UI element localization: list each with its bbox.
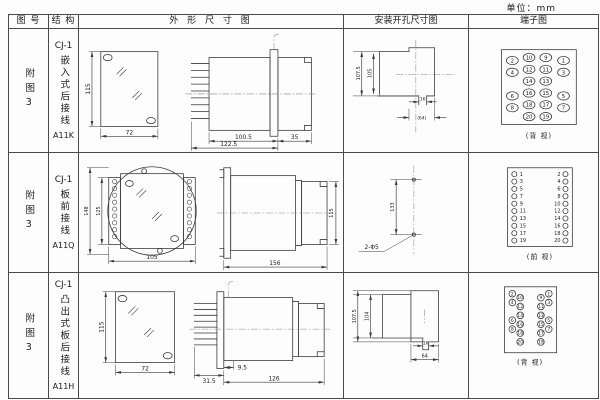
view-label: (背 视): [526, 131, 552, 140]
outline-drawing-a11q: 148 125 105 156 115: [80, 154, 343, 272]
dim-pin-length: 31.5: [202, 379, 215, 385]
svg-text:6: 6: [511, 93, 515, 99]
svg-text:5: 5: [562, 93, 565, 99]
row1-outline-cell: 115 72 100.5 35 122.5: [79, 29, 344, 153]
cutout-outline: [377, 47, 434, 104]
side-view: [185, 34, 317, 136]
unit-label: 单位：mm: [506, 1, 556, 14]
svg-text:14: 14: [554, 216, 560, 222]
svg-text:9: 9: [544, 55, 548, 61]
row2-install-cell: 133 2-Φ5: [344, 153, 469, 273]
svg-text:1: 1: [562, 58, 565, 64]
svg-text:10: 10: [554, 201, 560, 207]
row2-struct-cell: CJ-1 板前接线 A11Q: [49, 153, 79, 273]
svg-text:12: 12: [517, 304, 523, 310]
side-view: [216, 167, 332, 257]
dimensions: 107.5 104 16 64: [351, 291, 438, 363]
structure-desc: 嵌入式后接线: [59, 55, 69, 127]
svg-text:10: 10: [526, 55, 533, 61]
row3-install-cell: 107.5 104 16 64: [344, 273, 469, 398]
svg-text:16: 16: [554, 223, 560, 229]
row2-terminal-cell: 12 34 56 78 910 1112 1314 1516 1718 1920…: [469, 153, 598, 273]
dimensions: 107.5 105 16 (64): [352, 51, 445, 121]
dim-side-height: 115: [328, 208, 334, 217]
hole-callout: 2-Φ5: [364, 244, 379, 250]
dim-rear-length: 35: [290, 135, 298, 141]
front-view: [107, 166, 196, 254]
view-label: (前 视): [527, 252, 553, 261]
svg-text:19: 19: [520, 238, 526, 244]
terminal-diagram-a11h: 2 10 9 1 4 12 11 3 14 13 6 16 15 5 8 18: [469, 274, 598, 397]
dim-front-inner-height: 125: [95, 206, 101, 215]
svg-text:6: 6: [557, 186, 560, 192]
svg-text:11: 11: [520, 208, 526, 214]
svg-text:13: 13: [520, 216, 526, 222]
svg-text:11: 11: [542, 67, 549, 73]
row3-terminal-cell: 2 10 9 1 4 12 11 3 14 13 6 16 15 5 8 18: [469, 273, 598, 398]
svg-text:18: 18: [526, 102, 533, 108]
svg-text:19: 19: [538, 339, 544, 345]
header-fig: 图 号: [9, 15, 49, 29]
terminal-diagram-a11q: 12 34 56 78 910 1112 1314 1516 1718 1920…: [469, 154, 598, 272]
dimensions: 115 72 31.5 9.5 126: [99, 292, 323, 386]
svg-text:14: 14: [526, 79, 533, 85]
svg-text:15: 15: [542, 90, 549, 96]
svg-text:20: 20: [526, 114, 533, 120]
structure-desc: 板前接线: [59, 189, 69, 237]
dim-inner-height: 104: [364, 312, 370, 321]
row2-outline-cell: 148 125 105 156 115: [79, 153, 344, 273]
dim-cutout-width: 64: [421, 354, 427, 360]
manual-page: 单位：mm 图 号 结 构 外 形 尺 寸 图 安装开孔尺寸图 端子图 附图3 …: [0, 0, 600, 400]
svg-text:7: 7: [520, 193, 523, 199]
svg-text:14: 14: [517, 313, 523, 319]
svg-text:6: 6: [511, 318, 514, 324]
svg-text:20: 20: [517, 339, 523, 345]
dim-body-length: 100.5: [235, 135, 252, 141]
view-label: (背 视): [517, 358, 543, 367]
row1-install-cell: 107.5 105 16 (64): [344, 29, 469, 153]
svg-text:5: 5: [547, 318, 550, 324]
model-name: CJ-1: [55, 280, 73, 290]
dim-side-length: 156: [269, 261, 280, 267]
svg-text:3: 3: [562, 70, 565, 76]
dim-front-width: 72: [125, 130, 133, 136]
svg-text:16: 16: [526, 90, 533, 96]
svg-text:5: 5: [520, 186, 523, 192]
svg-text:13: 13: [542, 79, 549, 85]
dim-notch-width: 16: [422, 340, 428, 346]
dim-outer-height: 107.5: [351, 309, 357, 323]
svg-text:3: 3: [547, 300, 550, 306]
svg-text:17: 17: [538, 331, 544, 337]
front-view: [115, 292, 174, 363]
svg-text:1: 1: [547, 291, 550, 297]
terminals: 2 10 9 1 4 12 11 3 14 13 6 16 15 5 8 18: [506, 53, 569, 120]
row2-fig-cell: 附图3: [9, 153, 49, 273]
model-name: CJ-1: [55, 41, 73, 51]
figure-number: 附图3: [24, 68, 34, 113]
terminals: 12 34 56 78 910 1112 1314 1516 1718 1920: [512, 171, 568, 244]
svg-text:7: 7: [547, 327, 550, 333]
dim-hole-spacing: 133: [390, 202, 396, 211]
svg-text:12: 12: [526, 67, 533, 73]
svg-text:8: 8: [557, 193, 560, 199]
svg-text:4: 4: [557, 179, 560, 185]
svg-text:16: 16: [517, 322, 523, 328]
model-name: CJ-1: [55, 175, 73, 185]
dim-body-length: 126: [268, 376, 279, 382]
model-code: A11K: [53, 131, 74, 140]
svg-text:9: 9: [520, 201, 523, 207]
dim-inner-height: 105: [367, 68, 373, 77]
svg-text:2: 2: [511, 291, 514, 297]
svg-text:12: 12: [554, 208, 560, 214]
svg-text:2: 2: [557, 171, 560, 177]
dim-notch-width: 16: [419, 96, 425, 102]
svg-text:11: 11: [538, 304, 544, 310]
svg-text:10: 10: [517, 295, 523, 301]
side-view: [189, 282, 330, 369]
terminal-diagram-a11k: 2 10 9 1 4 12 11 3 14 13 6 16 15 5 8 18: [469, 30, 598, 152]
terminals: 2 10 9 1 4 12 11 3 14 13 6 16 15 5 8 18: [509, 290, 552, 345]
svg-text:15: 15: [520, 223, 526, 229]
row1-struct-cell: CJ-1 嵌入式后接线 A11K: [49, 29, 79, 153]
front-view: [100, 51, 157, 126]
install-drawing-a11h: 107.5 104 16 64: [345, 274, 468, 397]
svg-text:3: 3: [520, 179, 523, 185]
dim-front-height: 115: [99, 321, 105, 332]
svg-text:4: 4: [511, 70, 515, 76]
header-outline: 外 形 尺 寸 图: [79, 15, 344, 29]
svg-text:8: 8: [511, 327, 514, 333]
svg-text:9: 9: [539, 295, 542, 301]
row3-outline-cell: 115 72 31.5 9.5 126: [79, 273, 344, 398]
header-terminal: 端子图: [469, 15, 598, 29]
dim-cutout-width: (64): [417, 115, 426, 121]
svg-text:2: 2: [511, 58, 514, 64]
dim-total-length: 122.5: [220, 142, 237, 148]
dimensions: 148 125 105 156 115: [84, 167, 339, 269]
header-install: 安装开孔尺寸图: [344, 15, 469, 29]
dim-front-height: 115: [85, 83, 91, 94]
svg-text:18: 18: [554, 230, 560, 236]
dim-outer-height: 107.5: [355, 66, 361, 80]
dim-front-width: 72: [141, 366, 149, 372]
row1-fig-cell: 附图3: [9, 29, 49, 153]
install-drawing-a11k: 107.5 105 16 (64): [345, 30, 468, 152]
dim-flange-offset: 9.5: [237, 365, 247, 371]
svg-text:8: 8: [511, 105, 515, 111]
svg-text:7: 7: [562, 105, 565, 111]
svg-text:1: 1: [520, 171, 523, 177]
dim-front-width: 105: [146, 255, 157, 261]
svg-text:17: 17: [520, 230, 526, 236]
dim-front-outer-height: 148: [84, 206, 90, 215]
outline-drawing-a11k: 115 72 100.5 35 122.5: [80, 30, 343, 152]
svg-text:20: 20: [554, 238, 560, 244]
svg-text:18: 18: [517, 331, 523, 337]
row3-fig-cell: 附图3: [9, 273, 49, 398]
structure-desc: 凸出式板后接线: [59, 294, 69, 378]
cutout-outline: [372, 291, 438, 350]
svg-text:17: 17: [542, 102, 549, 108]
svg-text:13: 13: [538, 313, 544, 319]
spec-table: 图 号 结 构 外 形 尺 寸 图 安装开孔尺寸图 端子图 附图3 CJ-1 嵌…: [8, 14, 599, 399]
dimensions: 133 2-Φ5: [358, 179, 421, 251]
install-drawing-a11q: 133 2-Φ5: [345, 154, 468, 272]
outline-drawing-a11h: 115 72 31.5 9.5 126: [80, 274, 343, 397]
row3-struct-cell: CJ-1 凸出式板后接线 A11H: [49, 273, 79, 398]
header-struct: 结 构: [49, 15, 79, 29]
figure-number: 附图3: [24, 190, 34, 235]
figure-number: 附图3: [24, 313, 34, 358]
svg-text:19: 19: [542, 114, 549, 120]
svg-text:4: 4: [511, 300, 514, 306]
model-code: A11Q: [53, 241, 75, 250]
row1-terminal-cell: 2 10 9 1 4 12 11 3 14 13 6 16 15 5 8 18: [469, 29, 598, 153]
model-code: A11H: [53, 382, 75, 391]
svg-text:15: 15: [538, 322, 544, 328]
